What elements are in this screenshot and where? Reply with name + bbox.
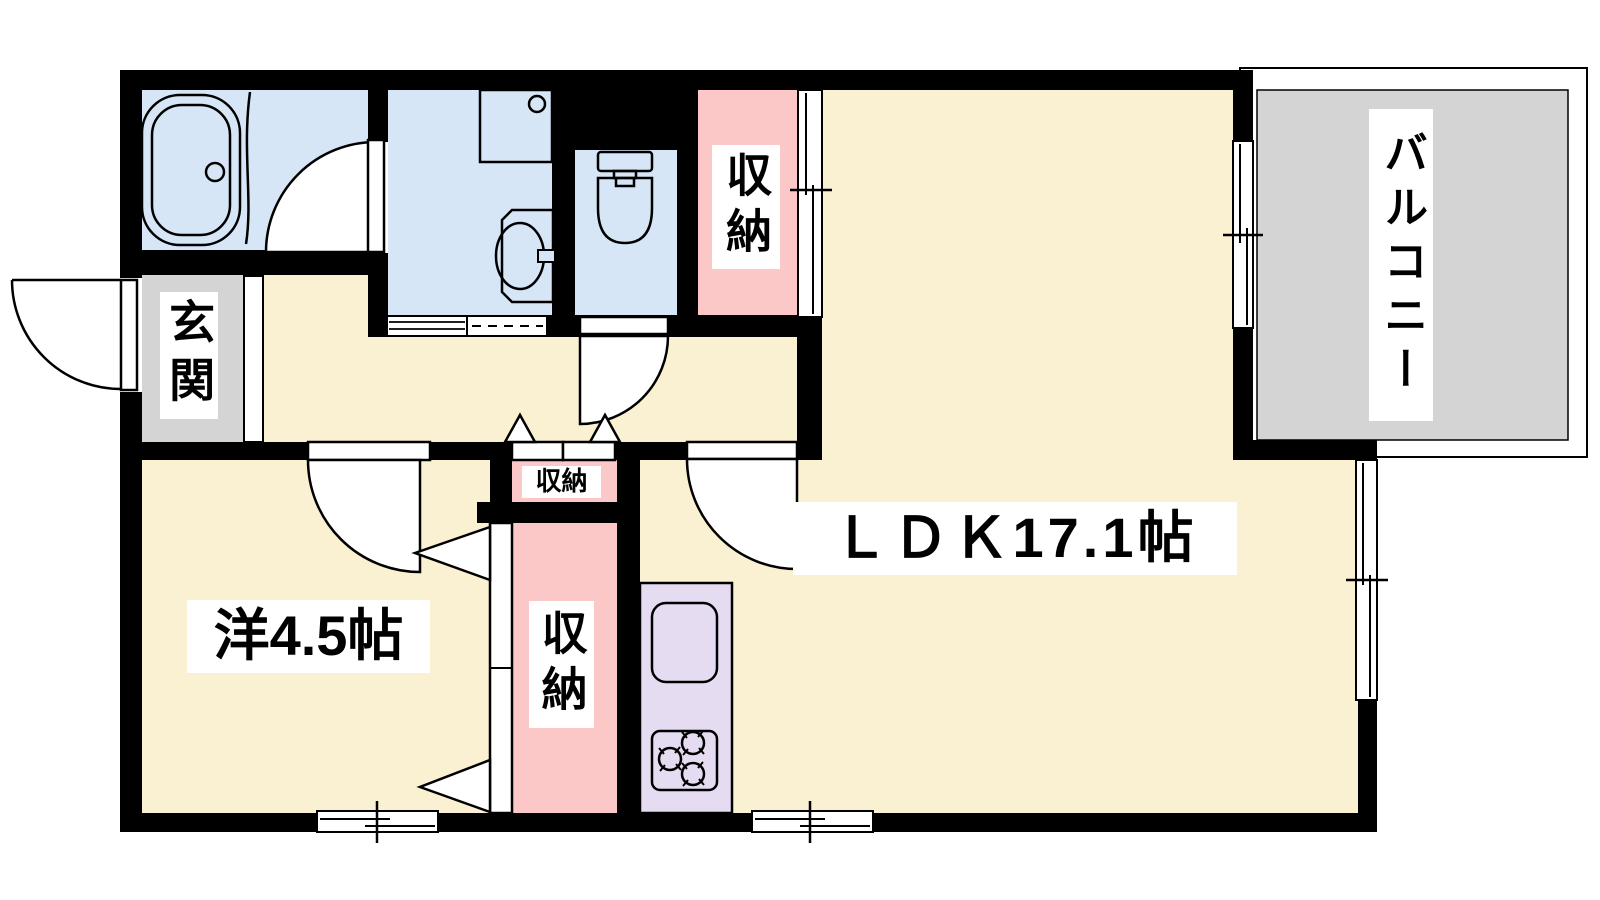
wall-mini-closet-west xyxy=(490,460,512,503)
wall-closet-divider xyxy=(477,502,617,523)
wall-left-upper xyxy=(120,70,142,280)
wall-hall-east xyxy=(797,317,822,460)
toilet-room-floor xyxy=(575,150,677,315)
ldk-door-leaf xyxy=(687,442,797,459)
western-room-label: 洋4.5帖 xyxy=(187,600,430,673)
wall-closet-kitchen xyxy=(617,443,640,813)
washroom-sliding-door xyxy=(387,316,547,336)
wall-under-balcony xyxy=(1233,440,1377,460)
washroom-floor xyxy=(388,90,552,317)
floor-plan-drawing xyxy=(0,0,1600,900)
wall-bath-south xyxy=(120,250,385,275)
ldk-label: ＬＤＫ17.1帖 xyxy=(793,502,1237,575)
washbasin-faucet xyxy=(538,250,555,262)
hall-closet-label: 収納 xyxy=(712,145,780,269)
bathroom-door-leaf xyxy=(368,140,384,252)
western-room-door-leaf xyxy=(308,442,430,460)
entrance-door xyxy=(12,278,142,392)
wall-bath-washroom-upper xyxy=(368,90,388,142)
kitchen xyxy=(640,583,732,813)
hallway-floor-west xyxy=(263,275,368,443)
wall-washroom-toilet xyxy=(552,150,575,315)
wall-toilet-closet xyxy=(677,150,698,315)
wall-bottom xyxy=(120,813,1377,832)
entrance-step xyxy=(244,276,263,442)
entrance-door-swing xyxy=(12,280,121,389)
wall-above-toilet xyxy=(552,90,698,150)
floor-plan: ＬＤＫ17.1帖 洋4.5帖 玄関 収納 収納 収納 バルコニー xyxy=(0,0,1600,900)
entrance-label: 玄関 xyxy=(160,292,218,419)
entrance-door-leaf xyxy=(121,280,137,390)
balcony-label: バルコニー xyxy=(1369,109,1433,421)
wall-top xyxy=(120,70,1253,90)
mini-closet-label: 収納 xyxy=(522,466,601,498)
bedroom-closet-label: 収納 xyxy=(529,601,594,728)
toilet-door-leaf xyxy=(580,317,668,334)
ldk-floor-upper xyxy=(822,90,1233,460)
